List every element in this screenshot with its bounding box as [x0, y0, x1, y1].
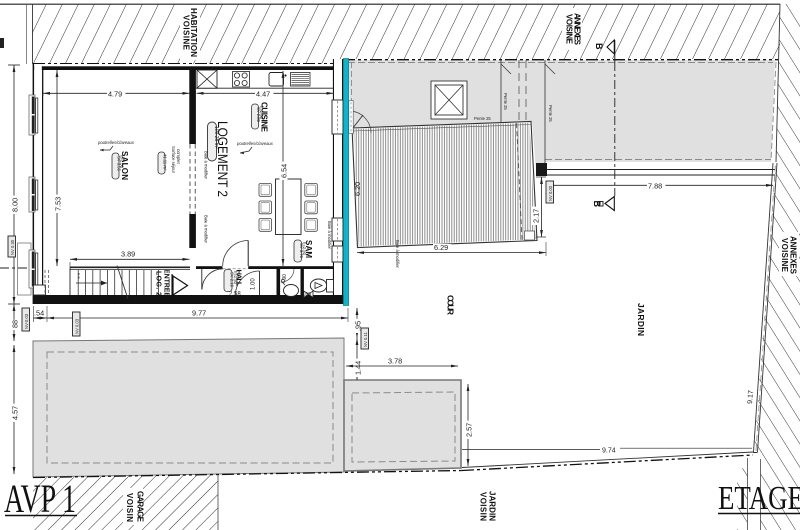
- svg-text:Baie à modifier: Baie à modifier: [395, 240, 400, 269]
- svg-text:JARDIN: JARDIN: [636, 303, 646, 336]
- svg-text:4.79: 4.79: [108, 90, 122, 99]
- svg-text:Pente 25: Pente 25: [548, 105, 553, 122]
- svg-text:SV 3.55: SV 3.55: [117, 156, 122, 172]
- svg-text:complet: complet: [176, 149, 181, 164]
- svg-text:B: B: [592, 201, 602, 208]
- svg-text:ENTREE: ENTREE: [163, 269, 170, 297]
- svg-text:Baie à modifier: Baie à modifier: [204, 215, 209, 244]
- svg-text:COUR: COUR: [446, 295, 456, 315]
- svg-text:2.17: 2.17: [532, 209, 541, 223]
- svg-text:2.58: 2.58: [229, 292, 241, 298]
- svg-text:9.17: 9.17: [747, 390, 755, 404]
- svg-text:LOG. 2: LOG. 2: [155, 271, 162, 296]
- svg-text:1.00: 1.00: [251, 278, 257, 290]
- svg-text:GARAGE: GARAGE: [136, 491, 145, 523]
- svg-text:SV 2.80: SV 2.80: [256, 107, 261, 123]
- svg-text:poutrelles/claveaux: poutrelles/claveaux: [236, 141, 274, 146]
- svg-text:.90: .90: [282, 274, 288, 281]
- svg-text:AVP 1: AVP 1: [4, 476, 76, 521]
- svg-text:.60: .60: [304, 292, 311, 298]
- svg-text:VOISIN: VOISIN: [479, 492, 488, 521]
- svg-text:NV 0.30: NV 0.30: [10, 239, 15, 255]
- svg-text:Pente 25: Pente 25: [503, 93, 508, 110]
- svg-text:1.44: 1.44: [354, 361, 363, 375]
- svg-text:9.74: 9.74: [602, 448, 616, 455]
- svg-text:6.20: 6.20: [353, 182, 362, 196]
- svg-text:poutrelles/claveaux: poutrelles/claveaux: [97, 140, 135, 145]
- svg-text:VOISIN: VOISIN: [125, 493, 134, 522]
- svg-text:JARDIN: JARDIN: [488, 491, 497, 521]
- svg-text:VOISINE: VOISINE: [565, 14, 574, 45]
- svg-text:2.57: 2.57: [465, 423, 474, 437]
- svg-text:41.11 m²: 41.11 m²: [163, 154, 168, 171]
- svg-text:Surface séjour: Surface séjour: [171, 146, 176, 174]
- svg-text:SV 2.10: SV 2.10: [230, 272, 235, 288]
- svg-text:VOISINE: VOISINE: [780, 238, 789, 273]
- svg-text:88: 88: [11, 320, 20, 328]
- svg-text:9.77: 9.77: [192, 309, 206, 318]
- svg-text:Baie à modifier: Baie à modifier: [327, 221, 332, 250]
- svg-text:NV-0.03: NV-0.03: [24, 313, 29, 329]
- svg-text:4.47: 4.47: [256, 90, 270, 99]
- svg-text:6.29: 6.29: [434, 243, 448, 252]
- svg-text:NV 0.00: NV 0.00: [548, 185, 553, 201]
- svg-text:NV 0.03: NV 0.03: [75, 318, 80, 334]
- svg-text:.54: .54: [34, 309, 44, 318]
- svg-text:7.88: 7.88: [648, 182, 662, 191]
- svg-text:4.57: 4.57: [11, 406, 20, 420]
- svg-text:B: B: [594, 43, 604, 50]
- svg-text:3.89: 3.89: [121, 250, 135, 259]
- svg-text:NV 0.11: NV 0.11: [363, 332, 368, 347]
- svg-text:7.53: 7.53: [54, 197, 63, 211]
- svg-text:6.54: 6.54: [280, 164, 289, 178]
- svg-text:3.78: 3.78: [388, 357, 402, 366]
- svg-text:VOISINE: VOISINE: [182, 15, 191, 51]
- svg-text:Baie à modifier: Baie à modifier: [204, 151, 209, 180]
- svg-text:ETAGE: ETAGE: [718, 480, 800, 517]
- svg-text:8.00: 8.00: [11, 198, 20, 212]
- svg-text:109.28 m²: 109.28 m²: [213, 126, 219, 149]
- svg-text:Pente 25: Pente 25: [474, 116, 491, 121]
- svg-text:SV 3.70: SV 3.70: [299, 243, 304, 259]
